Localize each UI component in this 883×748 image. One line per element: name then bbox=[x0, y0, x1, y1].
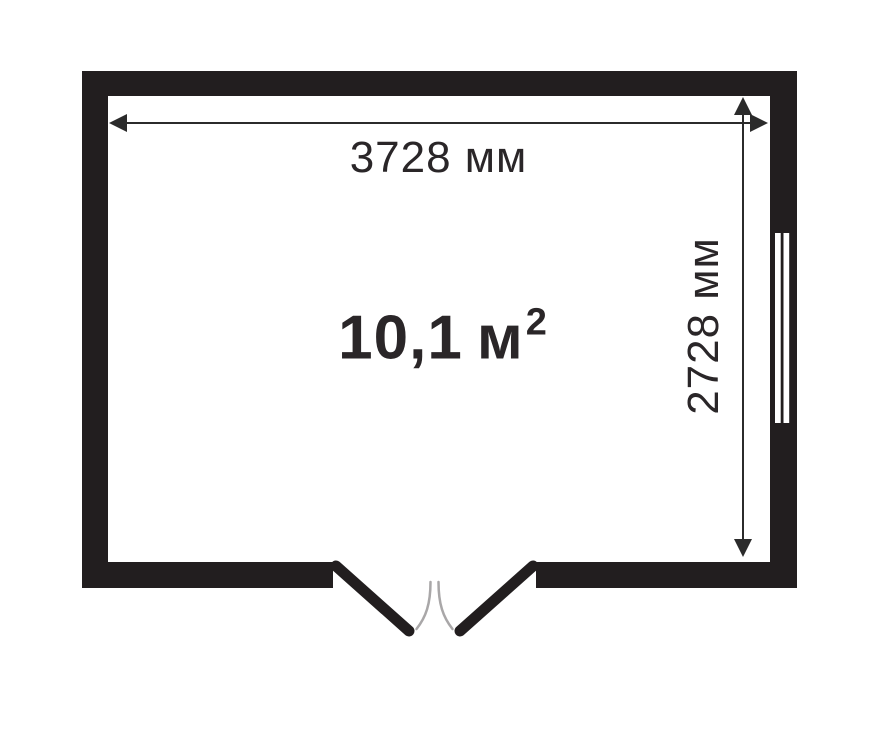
wall-left bbox=[82, 71, 108, 588]
width-dimension-arrow bbox=[109, 114, 768, 132]
door-swing-arc-left bbox=[417, 582, 431, 629]
wall-top bbox=[82, 71, 797, 96]
width-dimension-label: 3728 мм bbox=[109, 133, 768, 183]
height-dimension-label: 2728 мм bbox=[679, 237, 729, 415]
door-leaf-right bbox=[460, 566, 533, 631]
wall-bottom-left-segment bbox=[82, 562, 333, 588]
window-glass-line bbox=[784, 233, 790, 423]
area-label: 10,1м2 bbox=[338, 303, 548, 374]
area-value: 10,1 bbox=[338, 304, 463, 373]
floor-plan: 3728 мм 2728 мм 10,1м2 bbox=[0, 0, 883, 748]
area-exponent: 2 bbox=[526, 302, 548, 344]
door-leaf-left bbox=[336, 566, 409, 631]
wall-bottom-right-segment bbox=[536, 562, 797, 588]
double-door bbox=[336, 566, 533, 631]
floor-plan-drawing bbox=[0, 0, 883, 748]
door-swing-arc-right bbox=[439, 582, 453, 629]
area-unit: м bbox=[477, 304, 524, 373]
window-glass-line bbox=[775, 233, 781, 423]
